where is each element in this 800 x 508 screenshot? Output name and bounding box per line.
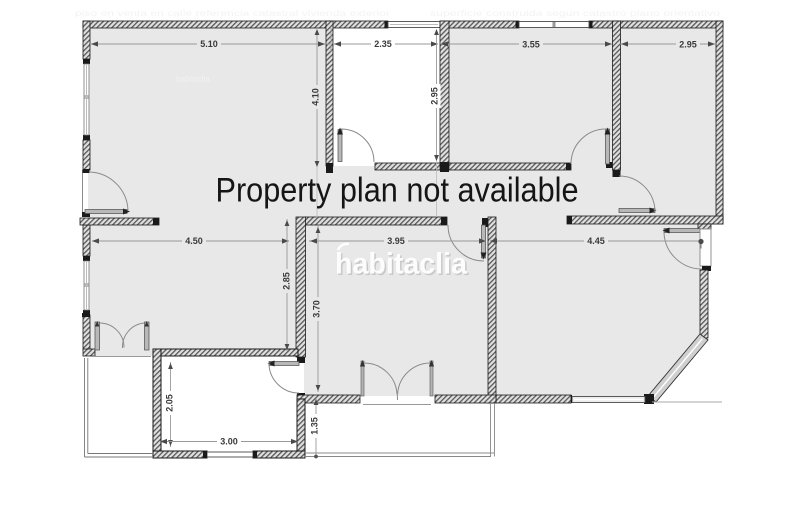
svg-text:2.05: 2.05 [164, 394, 174, 412]
svg-text:5.10: 5.10 [200, 39, 218, 49]
svg-text:habitaclia: habitaclia [335, 248, 467, 281]
svg-text:4.10: 4.10 [310, 88, 320, 106]
svg-text:piso en venta en calle referen: piso en venta en calle referencia catast… [75, 9, 390, 18]
svg-text:2.95: 2.95 [429, 87, 439, 105]
svg-text:2.85: 2.85 [281, 272, 291, 290]
svg-text:4.45: 4.45 [587, 236, 605, 246]
svg-text:3.00: 3.00 [220, 437, 238, 447]
svg-text:Property plan not available: Property plan not available [216, 172, 579, 210]
svg-text:2.35: 2.35 [374, 39, 392, 49]
svg-text:3.55: 3.55 [522, 40, 540, 50]
svg-text:habitaclia: habitaclia [176, 75, 210, 84]
svg-text:1.35: 1.35 [309, 417, 319, 435]
svg-text:4.50: 4.50 [185, 236, 203, 246]
svg-text:3.95: 3.95 [387, 236, 405, 246]
svg-text:3.70: 3.70 [311, 300, 321, 318]
svg-text:2.95: 2.95 [679, 40, 697, 50]
svg-text:superficie construida segun ca: superficie construida segun catastro pla… [430, 9, 721, 18]
